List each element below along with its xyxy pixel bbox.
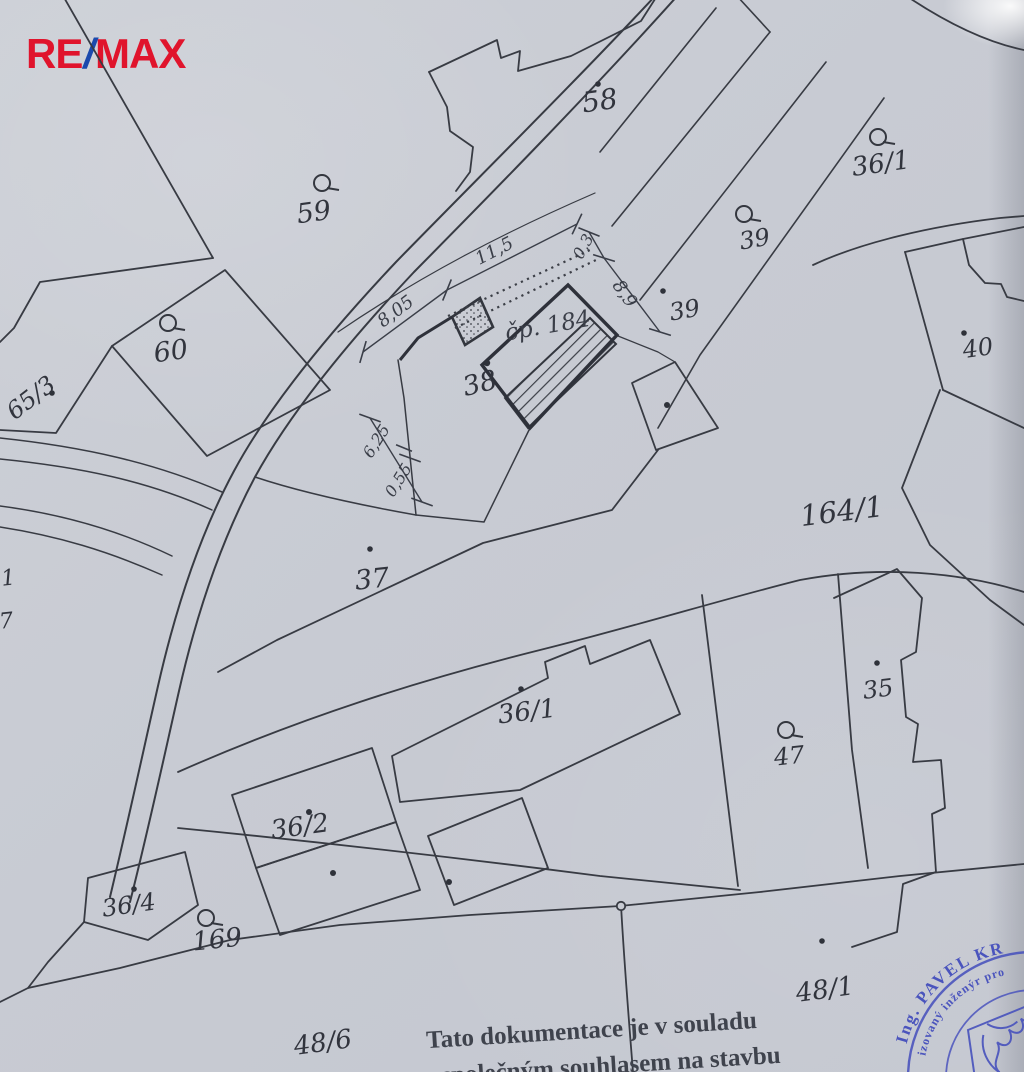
boundary-line <box>112 270 330 456</box>
parcel-label-164-1: 164/1 <box>798 489 885 533</box>
stamp-lion-emblem <box>961 998 1024 1072</box>
parcel-dot <box>367 546 373 552</box>
parcel-dot <box>446 879 452 885</box>
building-35-outline <box>834 569 945 947</box>
parcel-dot <box>874 660 880 666</box>
building-36-2a <box>232 748 396 868</box>
land-use-symbol-59 <box>314 175 339 191</box>
cadastral-map-drawing: 59 58 36/1 39 39 40 60 65/3 38 37 164/1 … <box>0 0 1024 1072</box>
dim-label-0-3: 0,3 <box>569 231 598 262</box>
boundary-node <box>617 902 625 910</box>
dim-label-11-5: 11,5 <box>472 233 517 270</box>
parcel-label-40: 40 <box>960 332 995 364</box>
bottom-boundary <box>0 864 1024 1002</box>
boundary-line <box>178 572 1024 772</box>
boundary-line <box>902 390 1024 625</box>
boundary-line <box>218 450 658 672</box>
annex-parcel <box>632 362 718 450</box>
parcel-dot <box>660 288 666 294</box>
parcel-label-58: 58 <box>580 82 620 120</box>
parcel-label-169: 169 <box>191 923 244 958</box>
land-use-symbol-60 <box>160 315 185 331</box>
land-use-symbol-36-1 <box>870 129 895 145</box>
road-lines-left <box>0 438 222 575</box>
parcel-label-37: 37 <box>353 562 391 597</box>
building-36-2c <box>428 798 548 905</box>
parcel-dot <box>664 402 670 408</box>
parcel-label-edge-7: 7 <box>0 608 15 634</box>
parcel-label-65-3: 65/3 <box>1 370 61 425</box>
parcel-label-39a: 39 <box>737 223 772 256</box>
parcel-labels: 59 58 36/1 39 39 40 60 65/3 38 37 164/1 … <box>0 82 995 1062</box>
parcel-label-48-1: 48/1 <box>793 971 856 1009</box>
strip-boundaries <box>600 0 884 428</box>
parcel-label-36-1m: 36/1 <box>496 694 558 731</box>
parcel-label-36-2: 36/2 <box>269 808 331 846</box>
parcel-label-36-1t: 36/1 <box>850 145 912 183</box>
parcel-label-39b: 39 <box>667 294 702 327</box>
bold-connector <box>400 317 452 360</box>
parcel-label-38: 38 <box>460 365 501 403</box>
boundary-line <box>838 574 868 868</box>
land-use-symbol-169 <box>198 910 223 926</box>
stamp-outer-text: Ing. PAVEL KR <box>892 938 1006 1045</box>
boundary-line <box>702 595 738 886</box>
parcel-dot <box>518 686 524 692</box>
building-58-outline <box>429 0 657 191</box>
parcel-label-60: 60 <box>152 334 190 369</box>
parcel-label-edge-1: 1 <box>0 565 17 591</box>
boundary-line <box>813 216 1024 265</box>
dim-label-8-05: 8,05 <box>373 291 418 332</box>
boundary-line <box>178 828 740 890</box>
land-use-symbol-39 <box>736 206 761 222</box>
cadastral-map-page: RE/MAX <box>0 0 1024 1072</box>
parcel-dot <box>819 938 825 944</box>
bottom-note: Tato dokumentace je v souladu se společn… <box>414 1007 782 1072</box>
land-use-symbol-47 <box>778 722 803 738</box>
building-40-outline <box>905 227 1024 428</box>
dim-label-6-25: 6,25 <box>359 421 394 461</box>
dimension-labels: 8,05 11,5 0,3 8,9 6,25 0,55 <box>359 231 641 501</box>
boundary-line <box>62 0 213 258</box>
dim-label-8-9: 8,9 <box>608 276 642 312</box>
boundary-line <box>621 905 633 1072</box>
parcel-label-35: 35 <box>861 673 895 705</box>
parcel-label-59: 59 <box>295 195 333 230</box>
official-stamp: Ing. PAVEL KR izovaný inženýr pro <box>892 938 1024 1072</box>
parcel-label-48-6: 48/6 <box>291 1024 354 1062</box>
parcel-label-36-4: 36/4 <box>100 887 157 922</box>
parcel-label-47: 47 <box>772 740 807 771</box>
boundary-line <box>905 0 1024 50</box>
parcel-dot <box>330 870 336 876</box>
boundary-line <box>618 336 675 362</box>
